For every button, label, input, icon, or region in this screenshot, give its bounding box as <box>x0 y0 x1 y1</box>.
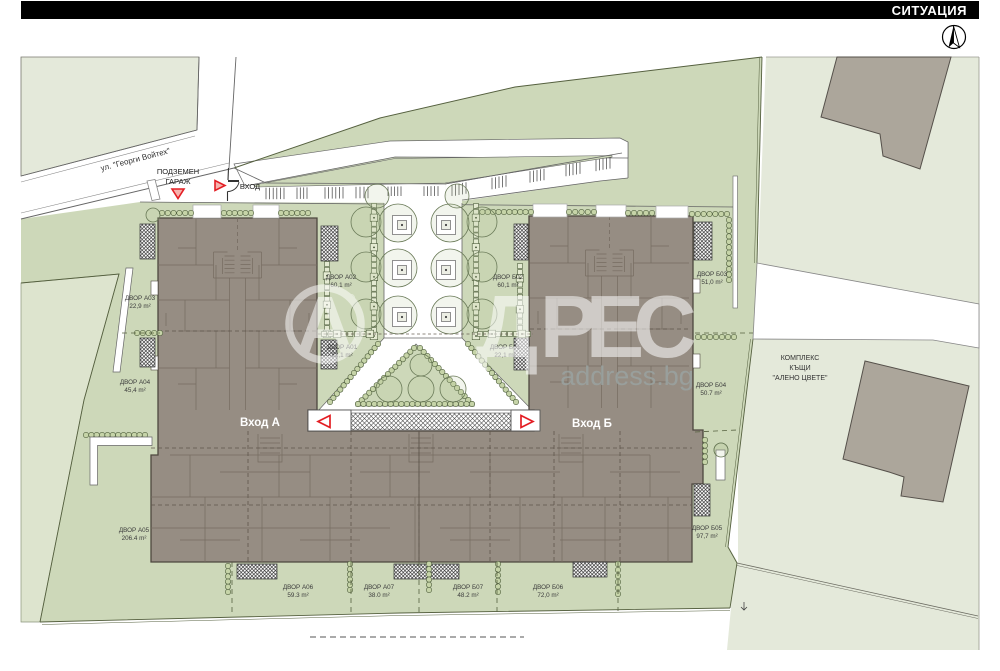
svg-text:45,4 m²: 45,4 m² <box>124 387 145 394</box>
svg-text:address.bg: address.bg <box>560 361 694 391</box>
svg-text:ВХОД: ВХОД <box>240 182 260 191</box>
svg-text:®: ® <box>347 293 355 305</box>
svg-text:КЪЩИ: КЪЩИ <box>789 365 810 372</box>
svg-text:КОМПЛЕКС: КОМПЛЕКС <box>781 355 820 362</box>
svg-text:СИТУАЦИЯ: СИТУАЦИЯ <box>892 3 967 18</box>
svg-text:ГАРАЖ: ГАРАЖ <box>166 177 191 186</box>
svg-text:97,7 m²: 97,7 m² <box>696 533 717 540</box>
svg-text:ДВОР А04: ДВОР А04 <box>120 379 151 386</box>
svg-text:Вход А: Вход А <box>240 417 280 429</box>
svg-text:ДВОР Б07: ДВОР Б07 <box>453 584 484 591</box>
svg-text:"АЛЕНО ЦВЕТЕ": "АЛЕНО ЦВЕТЕ" <box>773 375 828 382</box>
svg-text:51,0 m²: 51,0 m² <box>701 279 722 286</box>
svg-text:ДВОР Б03: ДВОР Б03 <box>697 271 728 278</box>
svg-text:А: А <box>296 280 354 369</box>
svg-text:50.7 m²: 50.7 m² <box>700 390 721 397</box>
svg-text:ДВОР Б04: ДВОР Б04 <box>696 382 727 389</box>
svg-text:ПОДЗЕМЕН: ПОДЗЕМЕН <box>157 167 199 176</box>
svg-text:ДВОР Б06: ДВОР Б06 <box>533 584 564 591</box>
svg-text:38.0 m²: 38.0 m² <box>368 592 389 599</box>
svg-text:ДВОР А06: ДВОР А06 <box>283 584 314 591</box>
svg-text:ДВОР А05: ДВОР А05 <box>119 527 150 534</box>
svg-text:59.3 m²: 59.3 m² <box>287 592 308 599</box>
svg-text:22,9 m²: 22,9 m² <box>129 303 150 310</box>
svg-text:ДВОР А07: ДВОР А07 <box>364 584 395 591</box>
svg-text:72,0 m²: 72,0 m² <box>537 592 558 599</box>
svg-text:ДВОР Б05: ДВОР Б05 <box>692 525 723 532</box>
svg-text:206.4 m²: 206.4 m² <box>122 535 147 542</box>
svg-text:ДВОР А03: ДВОР А03 <box>125 295 156 302</box>
svg-text:Вход Б: Вход Б <box>572 418 612 430</box>
svg-text:48.2 m²: 48.2 m² <box>457 592 478 599</box>
svg-text:Д: Д <box>476 277 539 376</box>
